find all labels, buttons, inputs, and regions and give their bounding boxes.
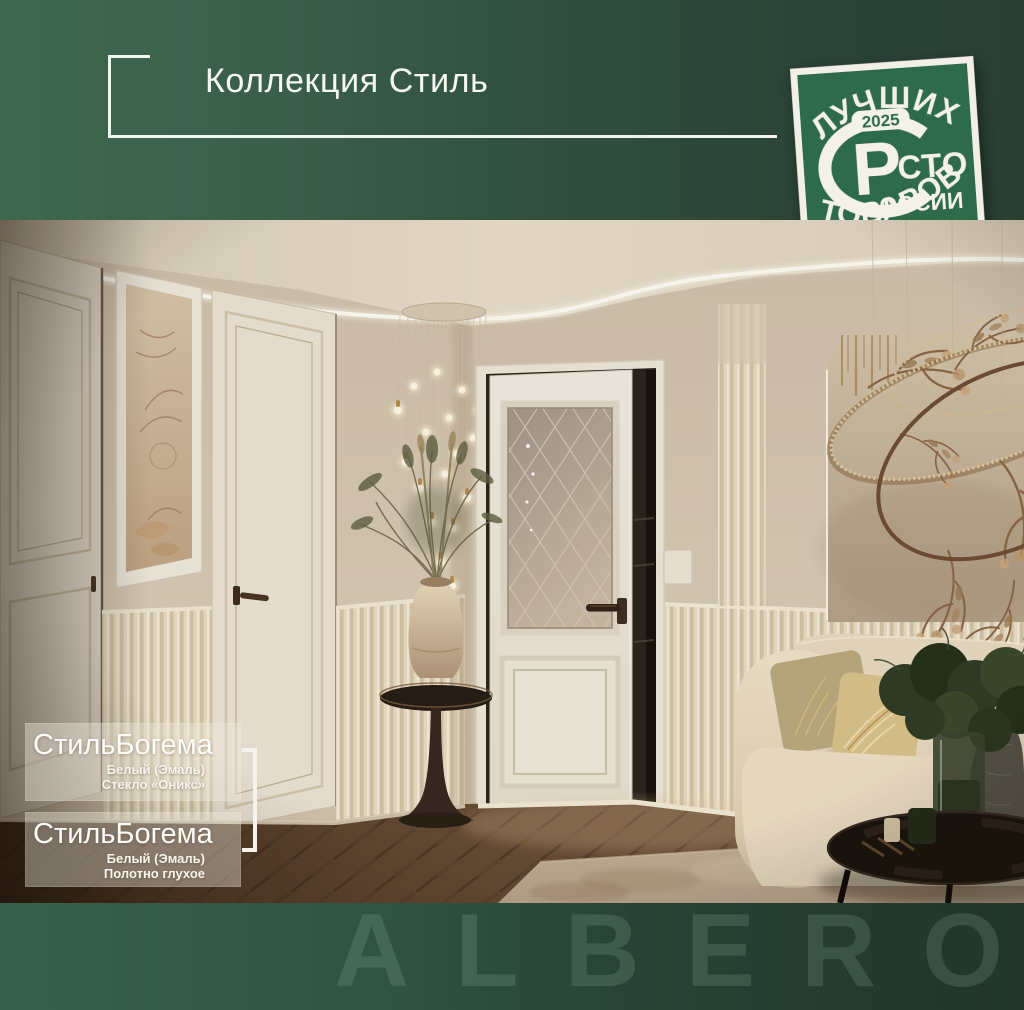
title-frame-vertical <box>108 55 111 138</box>
collection-title: Коллекция Стиль <box>205 62 488 101</box>
title-frame-top-stub <box>108 55 150 58</box>
product-label-2: СтильБогема Белый (Эмаль) Полотно глухое <box>25 812 241 887</box>
header-band: Коллекция Стиль ЛУЧШИХ 2025 Р СТО ОСС <box>0 0 1024 220</box>
footer-band: ALBERO <box>0 903 1024 1010</box>
brand-watermark: ALBERO <box>334 903 1024 1006</box>
title-frame-underline <box>108 135 777 138</box>
product-name: СтильБогема <box>33 729 203 762</box>
product-name: СтильБогема <box>33 818 203 851</box>
product-option: Стекло «Оникс» <box>33 777 205 792</box>
poster: Коллекция Стиль ЛУЧШИХ 2025 Р СТО ОСС <box>0 0 1024 1010</box>
labels-bracket <box>242 748 257 852</box>
product-finish: Белый (Эмаль) <box>33 851 205 866</box>
product-finish: Белый (Эмаль) <box>33 762 205 777</box>
product-label-1: СтильБогема Белый (Эмаль) Стекло «Оникс» <box>25 723 241 801</box>
product-option: Полотно глухое <box>33 866 205 881</box>
